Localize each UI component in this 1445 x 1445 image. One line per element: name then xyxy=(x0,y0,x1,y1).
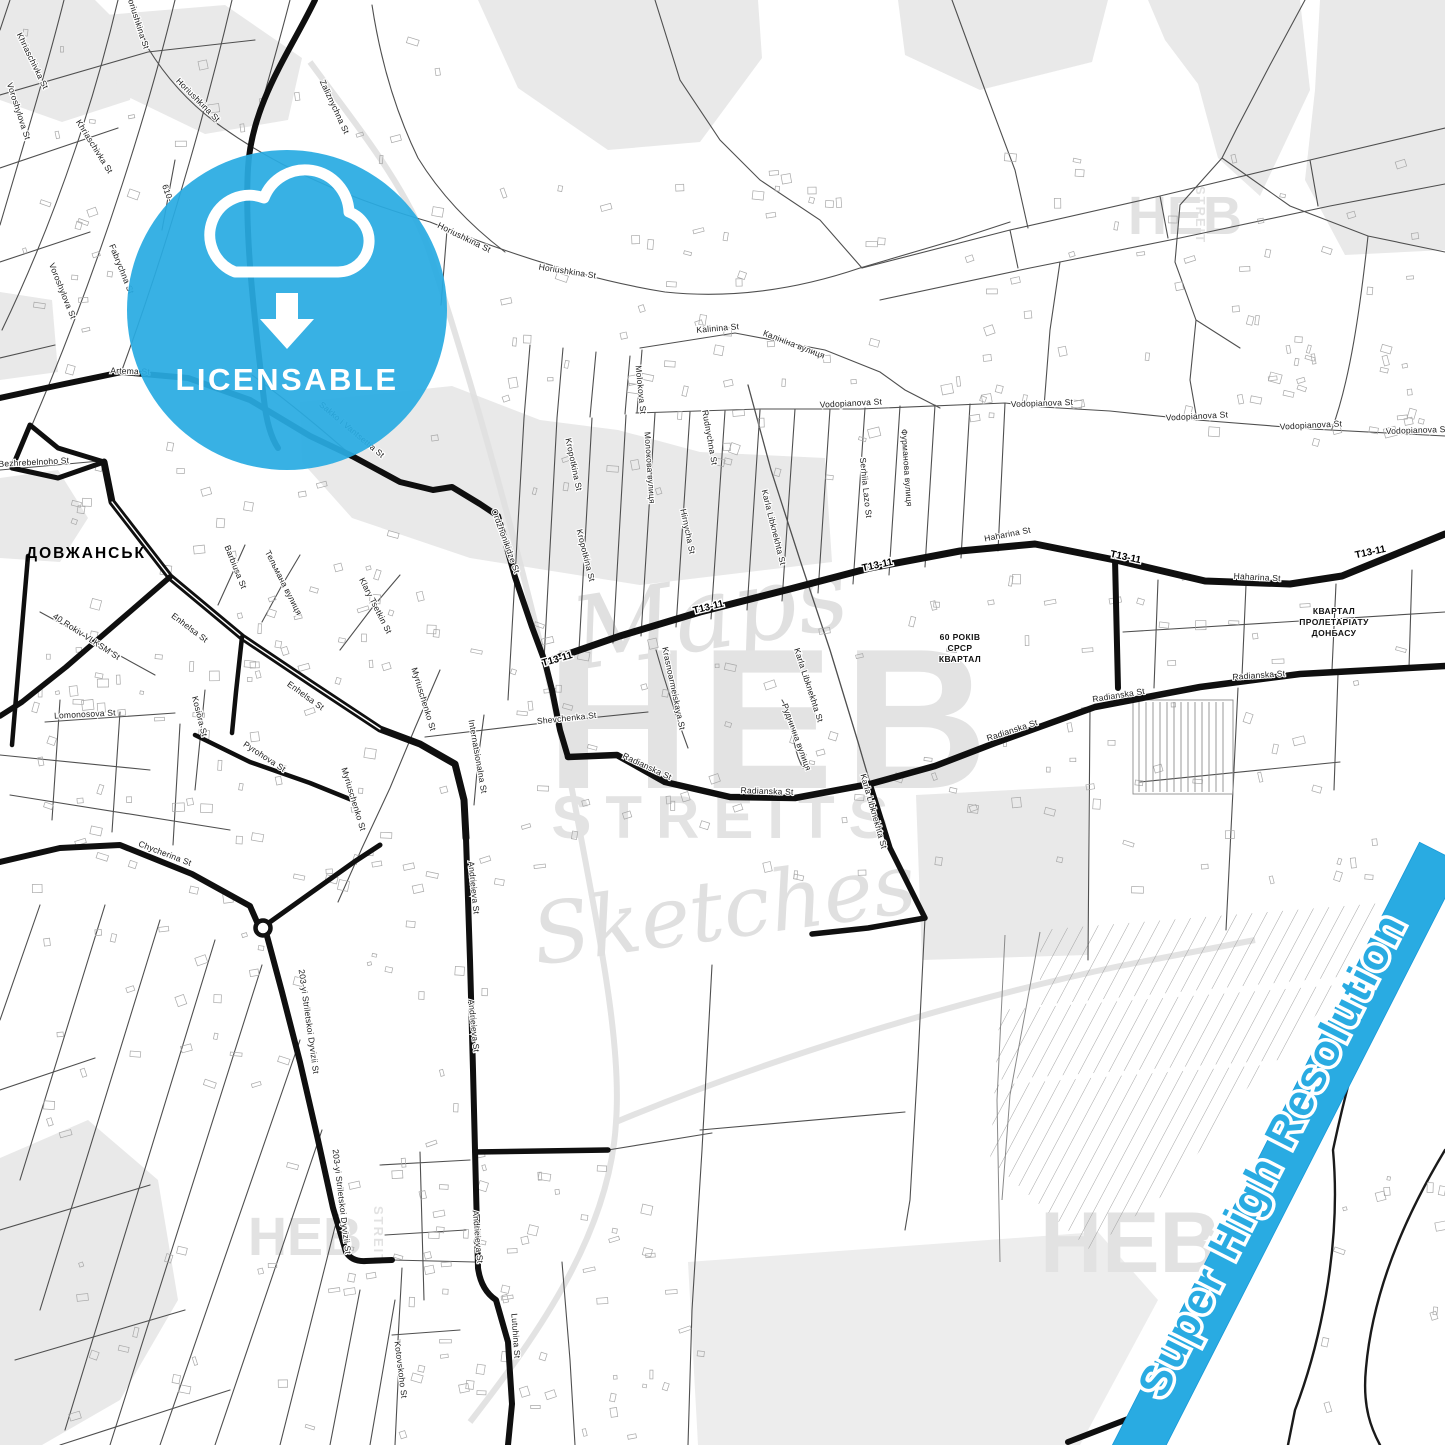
district-proletariatu-line1: КВАРТАЛ xyxy=(1313,606,1355,616)
badge-label: LICENSABLE xyxy=(175,362,398,397)
street-label-vodopianova: Vodopianova St xyxy=(1386,424,1445,436)
district-60-rokiv-line3: КВАРТАЛ xyxy=(939,654,981,664)
city-name: ДОВЖАНСЬК xyxy=(26,545,146,562)
download-badge[interactable]: LICENSABLE xyxy=(127,150,447,470)
map-poster: Maps HEB STREITS Sketches HEB STREIT HEB… xyxy=(0,0,1445,1445)
street-label-radianska: Radianska St xyxy=(740,785,794,797)
district-60-rokiv-line1: 60 РОКІВ xyxy=(940,632,981,642)
watermark-streit-bottomleft: STREIT xyxy=(371,1206,386,1264)
district-60-rokiv-line2: СРСР xyxy=(947,643,972,653)
district-proletariatu-line2: ПРОЛЕТАРІАТУ xyxy=(1299,617,1369,627)
watermark-streit-topright: STREIT xyxy=(1193,186,1208,244)
map-canvas: Maps HEB STREITS Sketches HEB STREIT HEB… xyxy=(0,0,1445,1445)
roundabout xyxy=(256,921,271,936)
district-proletariatu-line3: ДОНБАСУ xyxy=(1312,628,1357,638)
